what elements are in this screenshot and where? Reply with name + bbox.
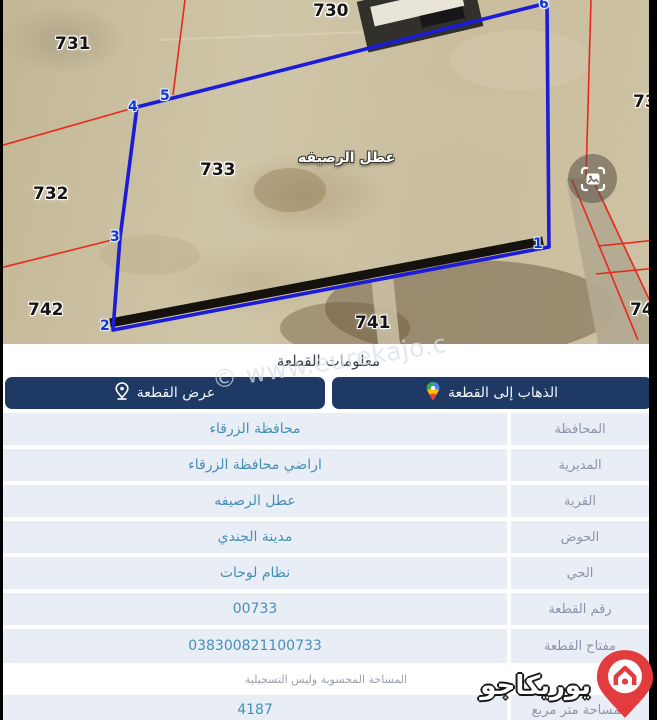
governorate-label: المحافظة <box>511 413 649 445</box>
area-value: 4187 <box>3 695 507 720</box>
directorate-value: اراضي محافظة الزرقاء <box>3 449 507 481</box>
parcel-number-label: 730 <box>313 1 349 21</box>
pin-drop-icon <box>115 382 129 404</box>
brand-pin-icon <box>595 648 655 720</box>
vertex-label: 3 <box>110 229 120 245</box>
brand-logo: يوريكاجو <box>480 648 655 720</box>
parcel-key-value: 038300821100733 <box>3 629 507 663</box>
parcel-number-label: 731 <box>55 34 91 54</box>
table-row-governorate: محافظة الزرقاء المحافظة <box>3 413 649 445</box>
table-row-village: عطل الرصيفه القرية <box>3 485 649 517</box>
parcel-number-label: 733 <box>200 160 236 180</box>
left-border <box>0 0 3 720</box>
scan-image-button[interactable] <box>568 154 617 203</box>
parcel-number-value: 00733 <box>3 593 507 625</box>
vertex-label: 6 <box>539 0 549 12</box>
table-row-directorate: اراضي محافظة الزرقاء المديرية <box>3 449 649 481</box>
district-label: الحي <box>511 557 649 589</box>
map-overlay-graphics <box>0 0 657 344</box>
basin-label: الحوض <box>511 521 649 553</box>
village-value: عطل الرصيفه <box>3 485 507 517</box>
village-map-label: عطل الرصيفه <box>298 150 395 166</box>
vertex-label: 4 <box>128 99 138 115</box>
vertex-label: 1 <box>533 236 543 252</box>
satellite-map[interactable]: 731 730 732 733 742 741 73 74 1 2 3 4 5 … <box>0 0 657 344</box>
goto-parcel-button[interactable]: الذهاب إلى القطعة <box>332 377 652 409</box>
goto-parcel-label: الذهاب إلى القطعة <box>448 385 558 401</box>
action-buttons-row: عرض القطعة الذهاب إلى القطعة <box>0 377 657 409</box>
right-border <box>649 0 657 720</box>
parcel-number-label: رقم القطعة <box>511 593 649 625</box>
basin-value: مدينة الجندي <box>3 521 507 553</box>
brand-name: يوريكاجو <box>480 671 591 701</box>
directorate-label: المديرية <box>511 449 649 481</box>
vertex-label: 2 <box>100 318 110 334</box>
scan-image-icon <box>578 164 608 194</box>
table-row-district: نظام لوحات الحي <box>3 557 649 589</box>
section-header: معلومات القطعة <box>0 344 657 377</box>
parcel-number-label: 741 <box>355 313 391 333</box>
google-maps-pin-icon <box>426 382 440 405</box>
district-value: نظام لوحات <box>3 557 507 589</box>
screen: 731 730 732 733 742 741 73 74 1 2 3 4 5 … <box>0 0 657 720</box>
parcel-number-label: 742 <box>28 300 64 320</box>
view-parcel-label: عرض القطعة <box>137 385 215 401</box>
view-parcel-button[interactable]: عرض القطعة <box>5 377 325 409</box>
parcel-number-label: 732 <box>33 184 69 204</box>
village-label: القرية <box>511 485 649 517</box>
section-title: معلومات القطعة <box>277 352 380 370</box>
vertex-label: 5 <box>160 88 170 104</box>
table-row-basin: مدينة الجندي الحوض <box>3 521 649 553</box>
table-row-parcel-number: 00733 رقم القطعة <box>3 593 649 625</box>
governorate-value: محافظة الزرقاء <box>3 413 507 445</box>
